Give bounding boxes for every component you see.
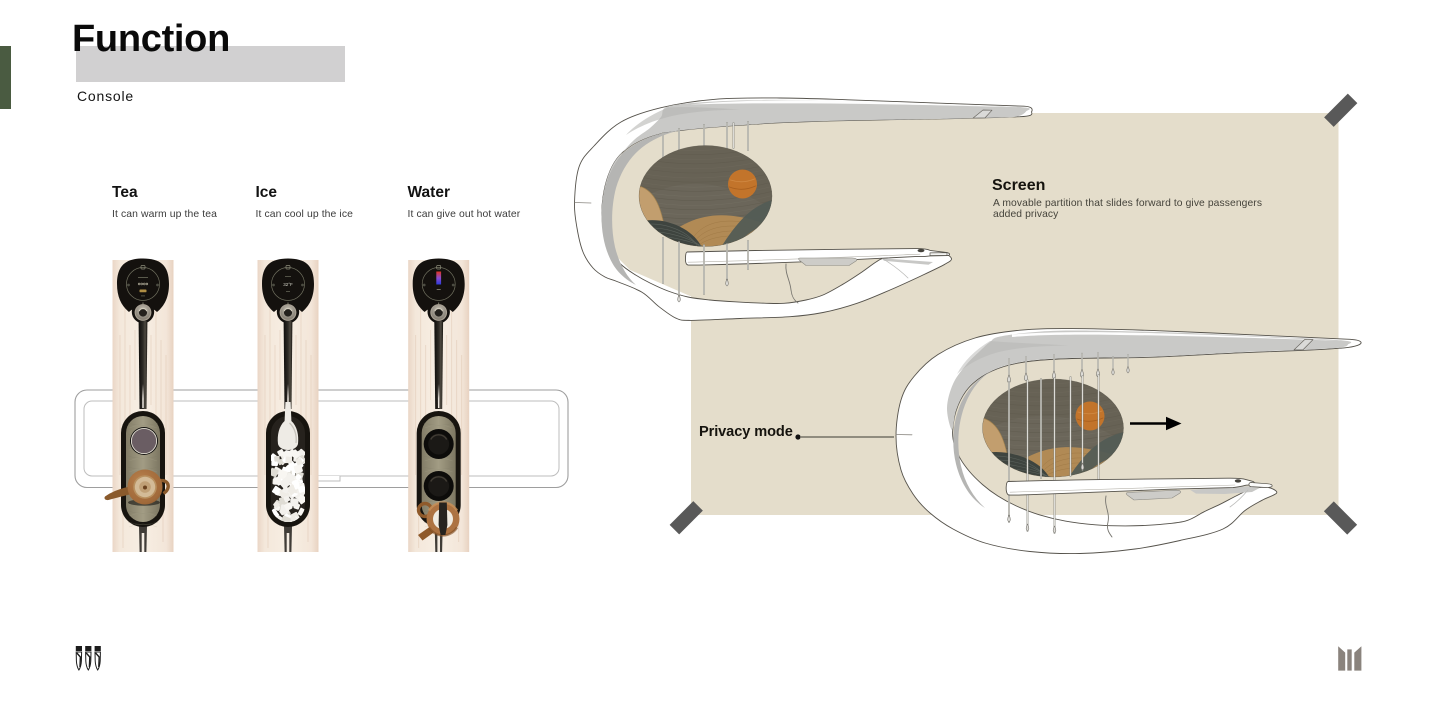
svg-text:32°F: 32°F xyxy=(283,282,293,287)
